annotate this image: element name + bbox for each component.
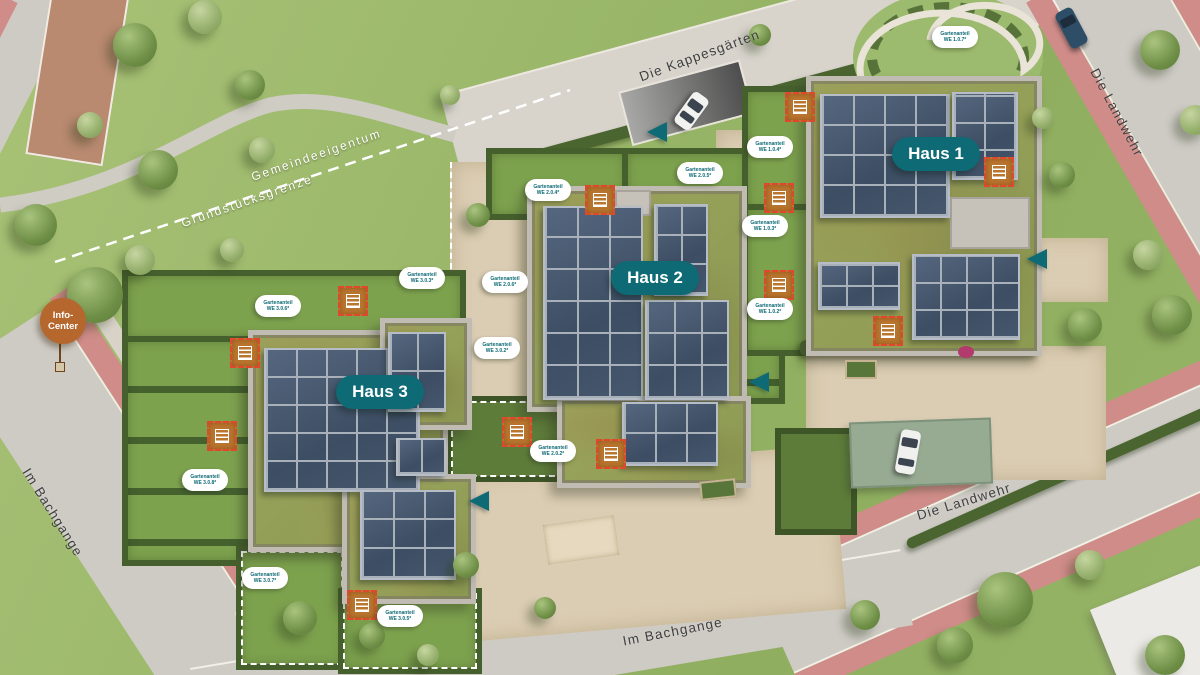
house-label-haus-2[interactable]: Haus 2 <box>611 261 699 295</box>
tree <box>125 245 155 275</box>
info-center-pin[interactable]: Info- Center <box>40 298 86 344</box>
garden-share-badge[interactable]: GartenanteilWE 3.0.8* <box>182 469 228 491</box>
car-windshield <box>901 437 918 449</box>
badge-line: WE 3.0.6* <box>267 306 290 312</box>
entrance-icon <box>215 429 229 443</box>
tree <box>417 644 439 666</box>
carport <box>849 418 993 489</box>
flower-bed <box>958 346 974 358</box>
tree <box>466 203 490 227</box>
tree <box>220 238 244 262</box>
tree <box>977 572 1033 628</box>
solar-panels <box>645 300 729 400</box>
tree <box>188 0 222 34</box>
tree <box>1152 295 1192 335</box>
car-rear-window <box>898 458 915 468</box>
tree <box>850 600 880 630</box>
entrance-icon <box>772 278 786 292</box>
tree <box>249 137 275 163</box>
garden-share-badge[interactable]: GartenanteilWE 1.0.4* <box>747 136 793 158</box>
planter-box <box>845 360 877 379</box>
garden-carport-west <box>775 428 857 535</box>
badge-line: WE 1.0.3* <box>754 226 777 232</box>
garden-share-badge[interactable]: GartenanteilWE 3.0.2* <box>474 337 520 359</box>
badge-line: WE 2.0.4* <box>537 190 560 196</box>
garden-share-badge[interactable]: GartenanteilWE 3.0.3* <box>399 267 445 289</box>
garden-share-badge[interactable]: GartenanteilWE 2.0.2* <box>530 440 576 462</box>
entrance-icon <box>772 191 786 205</box>
tree <box>937 627 973 663</box>
entrance-marker <box>338 286 368 316</box>
entrance-icon <box>793 100 807 114</box>
entrance-arrow-icon <box>749 372 769 392</box>
entrance-icon <box>992 165 1006 179</box>
solar-panels <box>396 438 446 476</box>
badge-line: WE 3.0.5* <box>389 616 412 622</box>
entrance-icon <box>238 346 252 360</box>
tree <box>359 623 385 649</box>
entrance-icon <box>346 294 360 308</box>
entrance-arrow-icon <box>647 122 667 142</box>
badge-line: WE 2.0.5* <box>689 173 712 179</box>
garden-haus3-west <box>122 336 254 566</box>
house-label-haus-3[interactable]: Haus 3 <box>336 375 424 409</box>
entrance-icon <box>881 324 895 338</box>
tree <box>1049 162 1075 188</box>
entrance-icon <box>593 193 607 207</box>
tree <box>1140 30 1180 70</box>
tree <box>138 150 178 190</box>
house-label-haus-1[interactable]: Haus 1 <box>892 137 980 171</box>
entrance-marker <box>596 439 626 469</box>
solar-panels <box>622 402 718 466</box>
entrance-marker <box>230 338 260 368</box>
tree <box>440 85 460 105</box>
park-path <box>0 101 455 205</box>
planter-box <box>699 478 737 501</box>
tree <box>453 552 479 578</box>
garden-share-badge[interactable]: GartenanteilWE 2.0.5* <box>677 162 723 184</box>
entrance-icon <box>510 425 524 439</box>
entrance-icon <box>355 598 369 612</box>
badge-line: WE 1.0.2* <box>759 309 782 315</box>
garden-share-badge[interactable]: GartenanteilWE 2.0.6* <box>482 271 528 293</box>
info-center-base <box>55 362 65 372</box>
entrance-marker <box>785 92 815 122</box>
tree <box>1032 107 1054 129</box>
entrance-marker <box>984 157 1014 187</box>
garden-share-badge[interactable]: GartenanteilWE 3.0.6* <box>255 295 301 317</box>
tree <box>77 112 103 138</box>
badge-line: WE 2.0.2* <box>542 451 565 457</box>
entrance-marker <box>347 590 377 620</box>
entrance-marker <box>502 417 532 447</box>
tree <box>283 601 317 635</box>
badge-line: WE 1.0.7* <box>944 37 967 43</box>
badge-line: WE 3.0.3* <box>411 278 434 284</box>
solar-panels <box>360 490 456 580</box>
garden-share-badge[interactable]: GartenanteilWE 3.0.5* <box>377 605 423 627</box>
entrance-arrow-icon <box>469 491 489 511</box>
tree <box>1068 308 1102 342</box>
entrance-marker <box>585 185 615 215</box>
badge-line: WE 3.0.8* <box>194 480 217 486</box>
garden-share-badge[interactable]: GartenanteilWE 1.0.2* <box>747 298 793 320</box>
solar-panels <box>543 206 643 400</box>
tree <box>235 70 265 100</box>
site-plan: GartenanteilWE 1.0.4* GartenanteilWE 1.0… <box>0 0 1200 675</box>
tree <box>1075 550 1105 580</box>
badge-line: WE 3.0.2* <box>486 348 509 354</box>
entrance-marker <box>207 421 237 451</box>
garden-share-badge[interactable]: GartenanteilWE 1.0.7* <box>932 26 978 48</box>
garden-share-badge[interactable]: GartenanteilWE 1.0.3* <box>742 215 788 237</box>
solar-panels <box>912 254 1020 340</box>
tree <box>1133 240 1163 270</box>
entrance-marker <box>873 316 903 346</box>
badge-line: WE 1.0.4* <box>759 147 782 153</box>
tree <box>534 597 556 619</box>
garden-share-badge[interactable]: GartenanteilWE 3.0.7* <box>242 567 288 589</box>
entrance-arrow-icon <box>1027 249 1047 269</box>
tree <box>15 204 57 246</box>
haus1-roof-terrace <box>950 197 1030 249</box>
entrance-marker <box>764 270 794 300</box>
entrance-icon <box>604 447 618 461</box>
entrance-marker <box>764 183 794 213</box>
tree <box>113 23 157 67</box>
badge-line: WE 2.0.6* <box>494 282 517 288</box>
solar-panels <box>818 262 900 310</box>
garden-share-badge[interactable]: GartenanteilWE 2.0.4* <box>525 179 571 201</box>
info-center-line1: Info- <box>53 310 74 321</box>
badge-line: WE 3.0.7* <box>254 578 277 584</box>
info-center-line2: Center <box>48 321 78 332</box>
tree <box>1145 635 1185 675</box>
